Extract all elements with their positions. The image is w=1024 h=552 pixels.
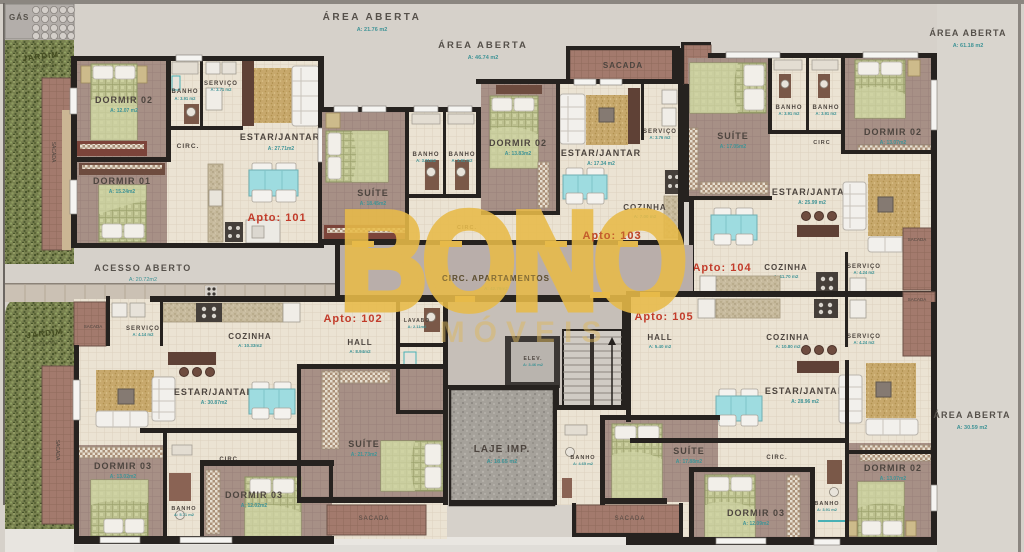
svg-text:A: 12.07 m2: A: 12.07 m2 — [110, 108, 138, 114]
svg-text:A: 5.40 m2: A: 5.40 m2 — [649, 344, 672, 349]
svg-text:A: 61.18 m2: A: 61.18 m2 — [953, 43, 984, 49]
svg-text:A: 13.02m2: A: 13.02m2 — [110, 474, 137, 480]
svg-text:CIRC.: CIRC. — [766, 455, 787, 461]
svg-text:A: 25.99 m2: A: 25.99 m2 — [798, 200, 826, 206]
svg-text:DORMIR 02: DORMIR 02 — [864, 463, 922, 473]
svg-text:Apto: 104: Apto: 104 — [692, 262, 751, 274]
svg-text:A: 17.34 m2: A: 17.34 m2 — [587, 161, 615, 167]
svg-text:A: 3.91m2: A: 3.91m2 — [416, 158, 436, 163]
svg-text:ESTAR/JANTAR: ESTAR/JANTAR — [561, 148, 641, 158]
svg-text:A: 3.91 m2: A: 3.91 m2 — [175, 96, 197, 101]
svg-text:SACADA: SACADA — [50, 142, 56, 163]
svg-text:A: 3.76 m2: A: 3.76 m2 — [650, 135, 672, 140]
svg-text:CIRC: CIRC — [813, 140, 830, 146]
svg-text:SACADA: SACADA — [54, 440, 60, 461]
svg-text:DORMIR 01: DORMIR 01 — [93, 176, 151, 186]
svg-text:SUÍTE: SUÍTE — [717, 131, 749, 141]
svg-text:LAJE IMP.: LAJE IMP. — [474, 444, 531, 455]
svg-text:A: 12.09m2: A: 12.09m2 — [743, 521, 770, 527]
svg-text:SACADA: SACADA — [908, 297, 927, 302]
svg-text:A: 4.14 m2: A: 4.14 m2 — [133, 332, 155, 337]
svg-text:MÓVEIS: MÓVEIS — [440, 315, 611, 349]
svg-text:A: 8.94m2: A: 8.94m2 — [349, 349, 371, 354]
svg-text:A: 13.83m2: A: 13.83m2 — [505, 151, 532, 157]
svg-text:SACADA: SACADA — [84, 324, 103, 329]
svg-text:ÁREA ABERTA: ÁREA ABERTA — [438, 40, 528, 51]
svg-text:A: 5.71 m2: A: 5.71 m2 — [174, 512, 195, 517]
svg-text:CIRC. APARTAMENTOS: CIRC. APARTAMENTOS — [442, 274, 550, 283]
svg-text:A: 4.65 m2: A: 4.65 m2 — [573, 461, 594, 466]
svg-text:A: 12.02m2: A: 12.02m2 — [241, 503, 268, 509]
svg-text:A: 46.74 m2: A: 46.74 m2 — [468, 55, 499, 61]
svg-text:A: 18.65 m2: A: 18.65 m2 — [487, 459, 518, 465]
svg-text:ACESSO ABERTO: ACESSO ABERTO — [94, 263, 192, 273]
svg-text:A: 3.71 m2: A: 3.71 m2 — [211, 87, 233, 92]
svg-text:DORMIR 03: DORMIR 03 — [225, 490, 283, 500]
svg-text:A: 17.05m2: A: 17.05m2 — [720, 144, 747, 150]
svg-text:DORMIR 02: DORMIR 02 — [95, 95, 153, 105]
svg-text:A: 21.73m2: A: 21.73m2 — [351, 452, 378, 458]
svg-text:HALL: HALL — [347, 338, 372, 347]
svg-text:SUÍTE: SUÍTE — [348, 439, 380, 449]
svg-text:BANHO: BANHO — [172, 89, 199, 95]
svg-text:SACADA: SACADA — [359, 516, 390, 522]
svg-text:A: 30.59 m2: A: 30.59 m2 — [957, 425, 988, 431]
svg-text:ESTAR/JANTAR: ESTAR/JANTAR — [174, 387, 254, 397]
svg-text:COZINHA: COZINHA — [764, 263, 807, 272]
svg-text:COZINHA: COZINHA — [766, 333, 809, 342]
svg-text:GÁS: GÁS — [9, 13, 29, 22]
svg-text:ESTAR/JANTAR: ESTAR/JANTAR — [240, 132, 320, 142]
svg-text:A: 4.24 m2: A: 4.24 m2 — [854, 340, 876, 345]
svg-text:A: 21.76 m2: A: 21.76 m2 — [357, 27, 388, 33]
svg-text:ÁREA ABERTA: ÁREA ABERTA — [323, 10, 422, 23]
svg-text:A: 3.46 m2: A: 3.46 m2 — [523, 362, 544, 367]
svg-text:A: 17.88m2: A: 17.88m2 — [676, 459, 703, 465]
svg-text:COZINHA: COZINHA — [228, 332, 271, 341]
svg-text:DORMIR 03: DORMIR 03 — [94, 461, 152, 471]
svg-text:Apto: 101: Apto: 101 — [247, 212, 306, 224]
svg-text:DORMIR 02: DORMIR 02 — [489, 138, 547, 148]
svg-text:ESTAR/JANTAR: ESTAR/JANTAR — [765, 386, 845, 396]
svg-text:A: 4.24 m2: A: 4.24 m2 — [854, 270, 876, 275]
svg-text:DORMIR 02: DORMIR 02 — [864, 127, 922, 137]
svg-text:A: 13.07m2: A: 13.07m2 — [880, 476, 907, 482]
svg-text:A: 28.96 m2: A: 28.96 m2 — [791, 399, 819, 405]
svg-text:SUÍTE: SUÍTE — [673, 446, 705, 456]
svg-text:A: 3.91 m2: A: 3.91 m2 — [817, 507, 838, 512]
svg-text:A: 10.80 m2: A: 10.80 m2 — [775, 344, 801, 349]
svg-text:ÁREA ABERTA: ÁREA ABERTA — [929, 28, 1006, 38]
svg-text:A: 3.91 m2: A: 3.91 m2 — [779, 111, 801, 116]
svg-text:ÁREA ABERTA: ÁREA ABERTA — [933, 410, 1010, 420]
svg-text:A: 27.71m2: A: 27.71m2 — [268, 146, 295, 152]
svg-text:DORMIR 03: DORMIR 03 — [727, 508, 785, 518]
svg-text:SACADA: SACADA — [615, 516, 646, 522]
svg-text:CIRC.: CIRC. — [177, 143, 200, 150]
svg-text:A: 15.24m2: A: 15.24m2 — [109, 189, 136, 195]
svg-text:Apto: 103: Apto: 103 — [582, 230, 641, 242]
svg-text:A: 3.91 m2: A: 3.91 m2 — [816, 111, 838, 116]
svg-text:SACADA: SACADA — [908, 237, 927, 242]
svg-text:A: 10.33m2: A: 10.33m2 — [238, 343, 262, 348]
svg-text:A: 30.87m2: A: 30.87m2 — [201, 400, 228, 406]
svg-text:ESTAR/JANTAR: ESTAR/JANTAR — [772, 187, 852, 197]
svg-text:A: 3.91 m2: A: 3.91 m2 — [452, 158, 474, 163]
svg-text:SACADA: SACADA — [603, 61, 643, 70]
svg-text:A: 20.72m2: A: 20.72m2 — [129, 277, 157, 283]
